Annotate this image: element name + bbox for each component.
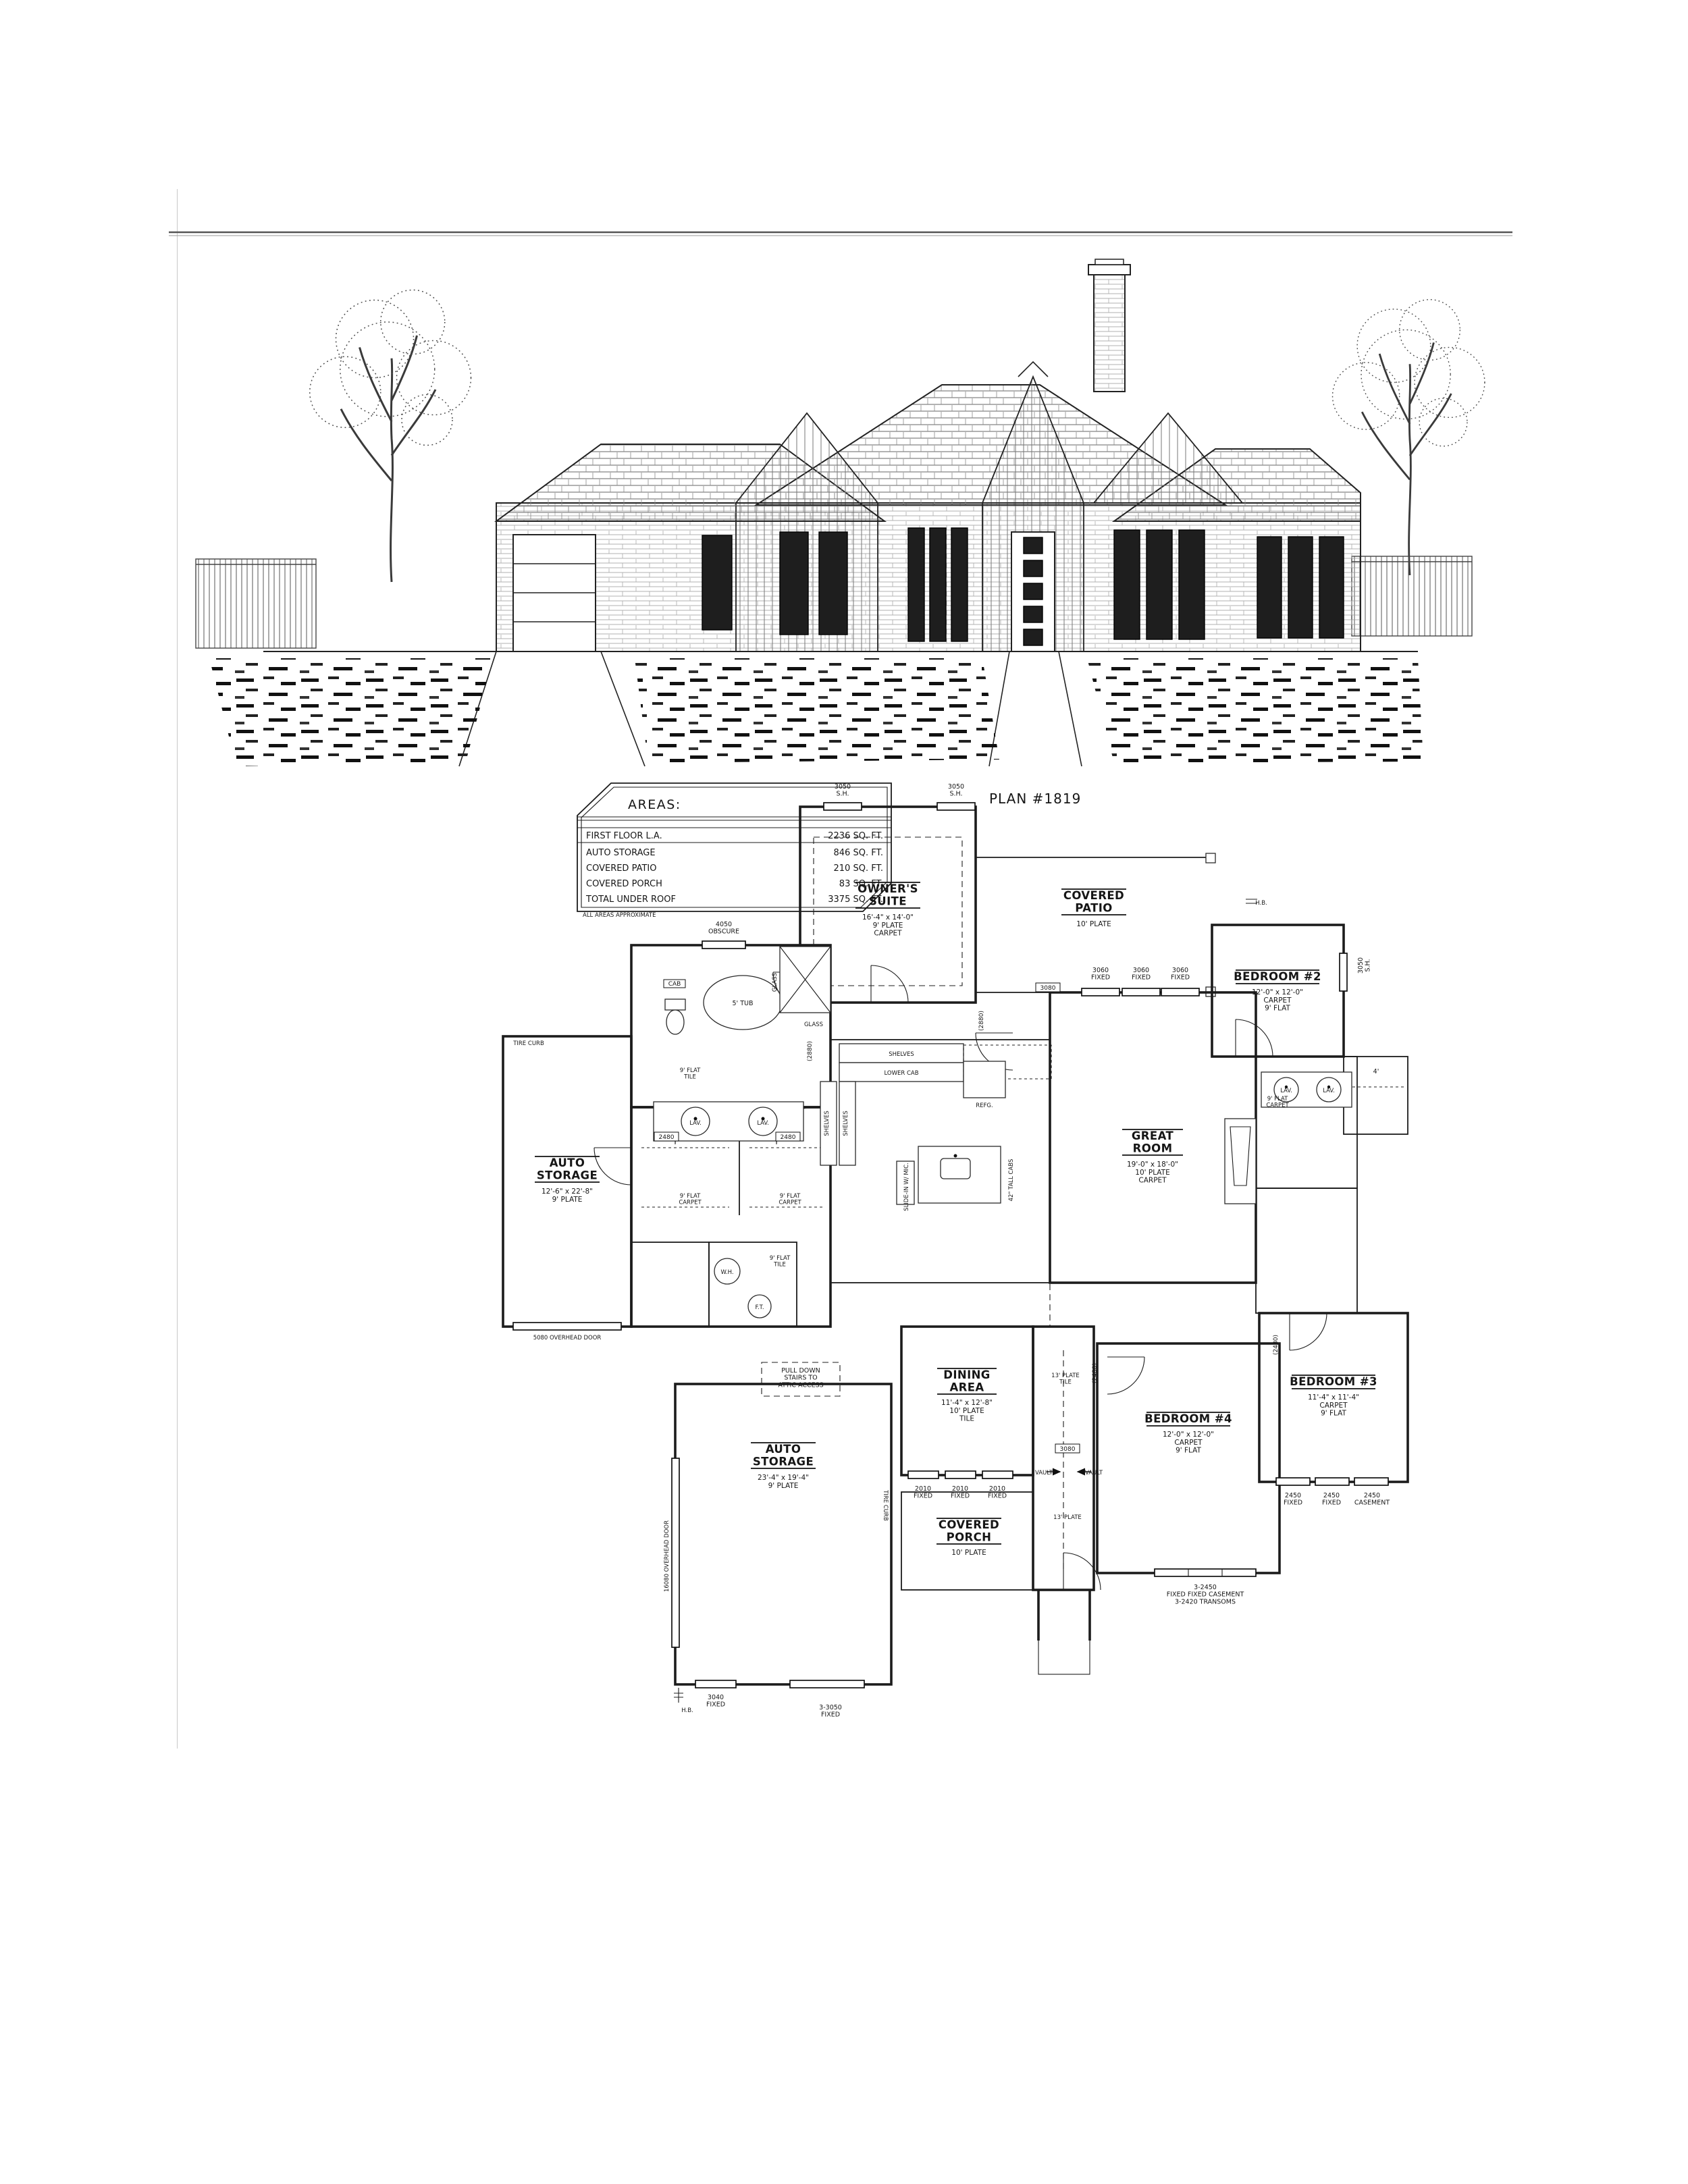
room-bedroom-3: BEDROOM #3 11'-4" x 11'-4"CARPET9' FLAT xyxy=(1290,1375,1377,1418)
overhead-door-label: 5080 OVERHEAD DOOR xyxy=(533,1335,602,1341)
house-walls xyxy=(496,503,1361,651)
areas-row-label: AUTO STORAGE xyxy=(586,848,656,858)
range-label: SLIDE-IN W/ MIC. xyxy=(903,1163,910,1211)
floor-trap-label: F.T. xyxy=(755,1304,764,1311)
areas-row-value: 846 SQ. FT. xyxy=(834,848,883,858)
floor-plan: PLAN #1819 AREAS: FIRST FLOOR L.A. 2236 … xyxy=(473,770,1431,1769)
room-great-room: GREATROOM 19'-0" x 18'-0"10' PLATECARPET xyxy=(1122,1129,1183,1185)
room-info: 12'-6" x 22'-8"9' PLATE xyxy=(542,1188,593,1204)
window-label: 3-3050FIXED xyxy=(819,1704,842,1719)
dimension-label: 4' xyxy=(1373,1068,1379,1075)
drawing-sheet: { "sheet": { "plan_title": "PLAN #1819" … xyxy=(0,0,1688,2184)
garage-door xyxy=(513,535,596,651)
areas-table-title: AREAS: xyxy=(628,797,681,812)
room-info: 16'-4" x 14'-0"9' PLATECARPET xyxy=(862,913,914,938)
front-elevation xyxy=(169,162,1512,770)
window-label: 3040FIXED xyxy=(706,1694,725,1709)
room-info: 12'-0" x 12'-0"CARPET9' FLAT xyxy=(1252,988,1303,1013)
room-bedroom-4: BEDROOM #4 12'-0" x 12'-0"CARPET9' FLAT xyxy=(1144,1412,1232,1455)
tire-curb-label: TIRE CURB xyxy=(512,1040,544,1047)
room-name: BEDROOM #4 xyxy=(1144,1412,1232,1425)
vault-label: VAULT xyxy=(1085,1470,1103,1476)
door-tag: 3080 xyxy=(1040,985,1056,992)
finish-label: 9' FLATCARPET xyxy=(779,1193,801,1206)
room-dining-area: DININGAREA 11'-4" x 12'-8"10' PLATETILE xyxy=(937,1368,997,1423)
chimney xyxy=(1088,259,1130,392)
room-info: 10' PLATE xyxy=(951,1549,986,1557)
room-info: 12'-0" x 12'-0"CARPET9' FLAT xyxy=(1163,1431,1214,1455)
window-label: 3050S.H. xyxy=(948,783,964,798)
shelves-label: SHELVES xyxy=(824,1111,830,1136)
hose-bib-label: H.B. xyxy=(681,1707,693,1714)
room-name: BEDROOM #2 xyxy=(1234,970,1321,983)
room-name: GREATROOM xyxy=(1132,1129,1174,1154)
room-name: COVEREDPORCH xyxy=(939,1518,999,1543)
window-label: 2450FIXED xyxy=(1284,1492,1302,1507)
room-name: AUTOSTORAGE xyxy=(537,1156,598,1181)
room-covered-porch: COVEREDPORCH 10' PLATE xyxy=(937,1518,1001,1557)
refrigerator-label: REFG. xyxy=(976,1102,993,1109)
attic-access-label: PULL DOWNSTAIRS TOATTIC ACCESS xyxy=(778,1367,823,1389)
fixtures xyxy=(654,899,1352,1703)
areas-row-label: TOTAL UNDER ROOF xyxy=(585,895,676,905)
lav-label: LAV. xyxy=(1280,1088,1292,1094)
door-tag: (2480) xyxy=(1273,1335,1280,1355)
lav-label: LAV. xyxy=(1323,1088,1335,1094)
overhead-door-label: 16080 OVERHEAD DOOR xyxy=(664,1520,670,1592)
lower-cab-label: LOWER CAB xyxy=(884,1070,918,1077)
room-name: COVEREDPATIO xyxy=(1063,889,1124,914)
window-label: 3050S.H. xyxy=(1357,957,1372,974)
lav-label: LAV. xyxy=(757,1120,769,1127)
hose-bib-label: H.B. xyxy=(1255,900,1267,907)
door-tag: (2480) xyxy=(1092,1363,1099,1383)
window-label: 3-2450FIXED FIXED CASEMENT3-2420 TRANSOM… xyxy=(1167,1584,1244,1605)
lav-label: LAV. xyxy=(689,1120,702,1127)
tree-left-icon xyxy=(310,290,471,583)
door-tag: (2880) xyxy=(807,1041,814,1061)
window-label: 3060FIXED xyxy=(1171,967,1190,982)
areas-row-label: COVERED PATIO xyxy=(586,863,656,874)
door-tag: (2880) xyxy=(978,1011,985,1031)
room-info: 23'-4" x 19'-4"9' PLATE xyxy=(758,1474,809,1490)
datum-line xyxy=(169,232,1512,236)
plan-annotations: 3050S.H. 3050S.H. 4050OBSCURE 3060FIXED … xyxy=(512,783,1390,1719)
window-label: 2450CASEMENT xyxy=(1354,1492,1390,1507)
door-tag: 2480 xyxy=(781,1134,796,1141)
finish-label: 9' FLATCARPET xyxy=(679,1193,702,1206)
window-label: 2450FIXED xyxy=(1322,1492,1341,1507)
areas-footnote: ALL AREAS APPROXIMATE xyxy=(583,912,656,919)
window-label: 3050S.H. xyxy=(835,783,851,798)
plate-label: 13' PLATETILE xyxy=(1051,1373,1080,1386)
cab-label: CAB xyxy=(668,981,681,988)
finish-label: 9' FLATTILE xyxy=(680,1067,701,1081)
tire-curb-label: TIRE CURB xyxy=(882,1489,889,1521)
glass-label: GLASS xyxy=(772,973,779,992)
finish-label: 9' FLATCARPET xyxy=(1266,1096,1289,1109)
room-name: DININGAREA xyxy=(943,1368,991,1393)
door-tag: 2480 xyxy=(659,1134,675,1141)
ground-and-driveway xyxy=(209,651,1423,766)
room-info: 11'-4" x 12'-8"10' PLATETILE xyxy=(941,1399,993,1423)
room-name: BEDROOM #3 xyxy=(1290,1375,1377,1388)
plan-title: PLAN #1819 xyxy=(989,791,1081,807)
areas-row-value: 2236 SQ. FT. xyxy=(828,831,883,841)
window-label: 3060FIXED xyxy=(1132,967,1151,982)
room-info: 10' PLATE xyxy=(1076,920,1111,928)
areas-row-value: 210 SQ. FT. xyxy=(834,863,883,874)
water-heater-label: W.H. xyxy=(720,1269,733,1276)
plate-label: 13' PLATE xyxy=(1053,1514,1082,1521)
room-info: 11'-4" x 11'-4"CARPET9' FLAT xyxy=(1308,1393,1359,1418)
room-name: AUTOSTORAGE xyxy=(753,1443,814,1468)
tall-cabs-label: 42" TALL CABS xyxy=(1008,1159,1015,1202)
room-covered-patio: COVEREDPATIO 10' PLATE xyxy=(1061,889,1126,928)
window-label: 2010FIXED xyxy=(914,1485,932,1500)
finish-label: 9' FLATTILE xyxy=(770,1255,791,1269)
fence-left xyxy=(196,559,316,648)
window-label: 3060FIXED xyxy=(1091,967,1110,982)
front-door xyxy=(1011,532,1055,651)
door-tag: 3080 xyxy=(1060,1446,1076,1453)
areas-row-label: COVERED PORCH xyxy=(586,879,662,889)
fence-right xyxy=(1352,556,1472,636)
shelves-label: SHELVES xyxy=(889,1051,914,1058)
window-label: 4050OBSCURE xyxy=(708,921,739,936)
glass-label: GLASS xyxy=(804,1021,823,1028)
room-auto-storage-side: AUTOSTORAGE 12'-6" x 22'-8"9' PLATE xyxy=(535,1156,600,1204)
tub-label: 5' TUB xyxy=(733,1000,754,1007)
shelves-label: SHELVES xyxy=(843,1111,849,1136)
areas-row-label: FIRST FLOOR L.A. xyxy=(586,831,662,841)
window-label: 2010FIXED xyxy=(951,1485,970,1500)
window-label: 2010FIXED xyxy=(988,1485,1007,1500)
vault-label: VAULT xyxy=(1035,1470,1053,1476)
room-info: 19'-0" x 18'-0"10' PLATECARPET xyxy=(1127,1161,1178,1185)
room-auto-storage-rear: AUTOSTORAGE 23'-4" x 19'-4"9' PLATE xyxy=(751,1443,816,1490)
